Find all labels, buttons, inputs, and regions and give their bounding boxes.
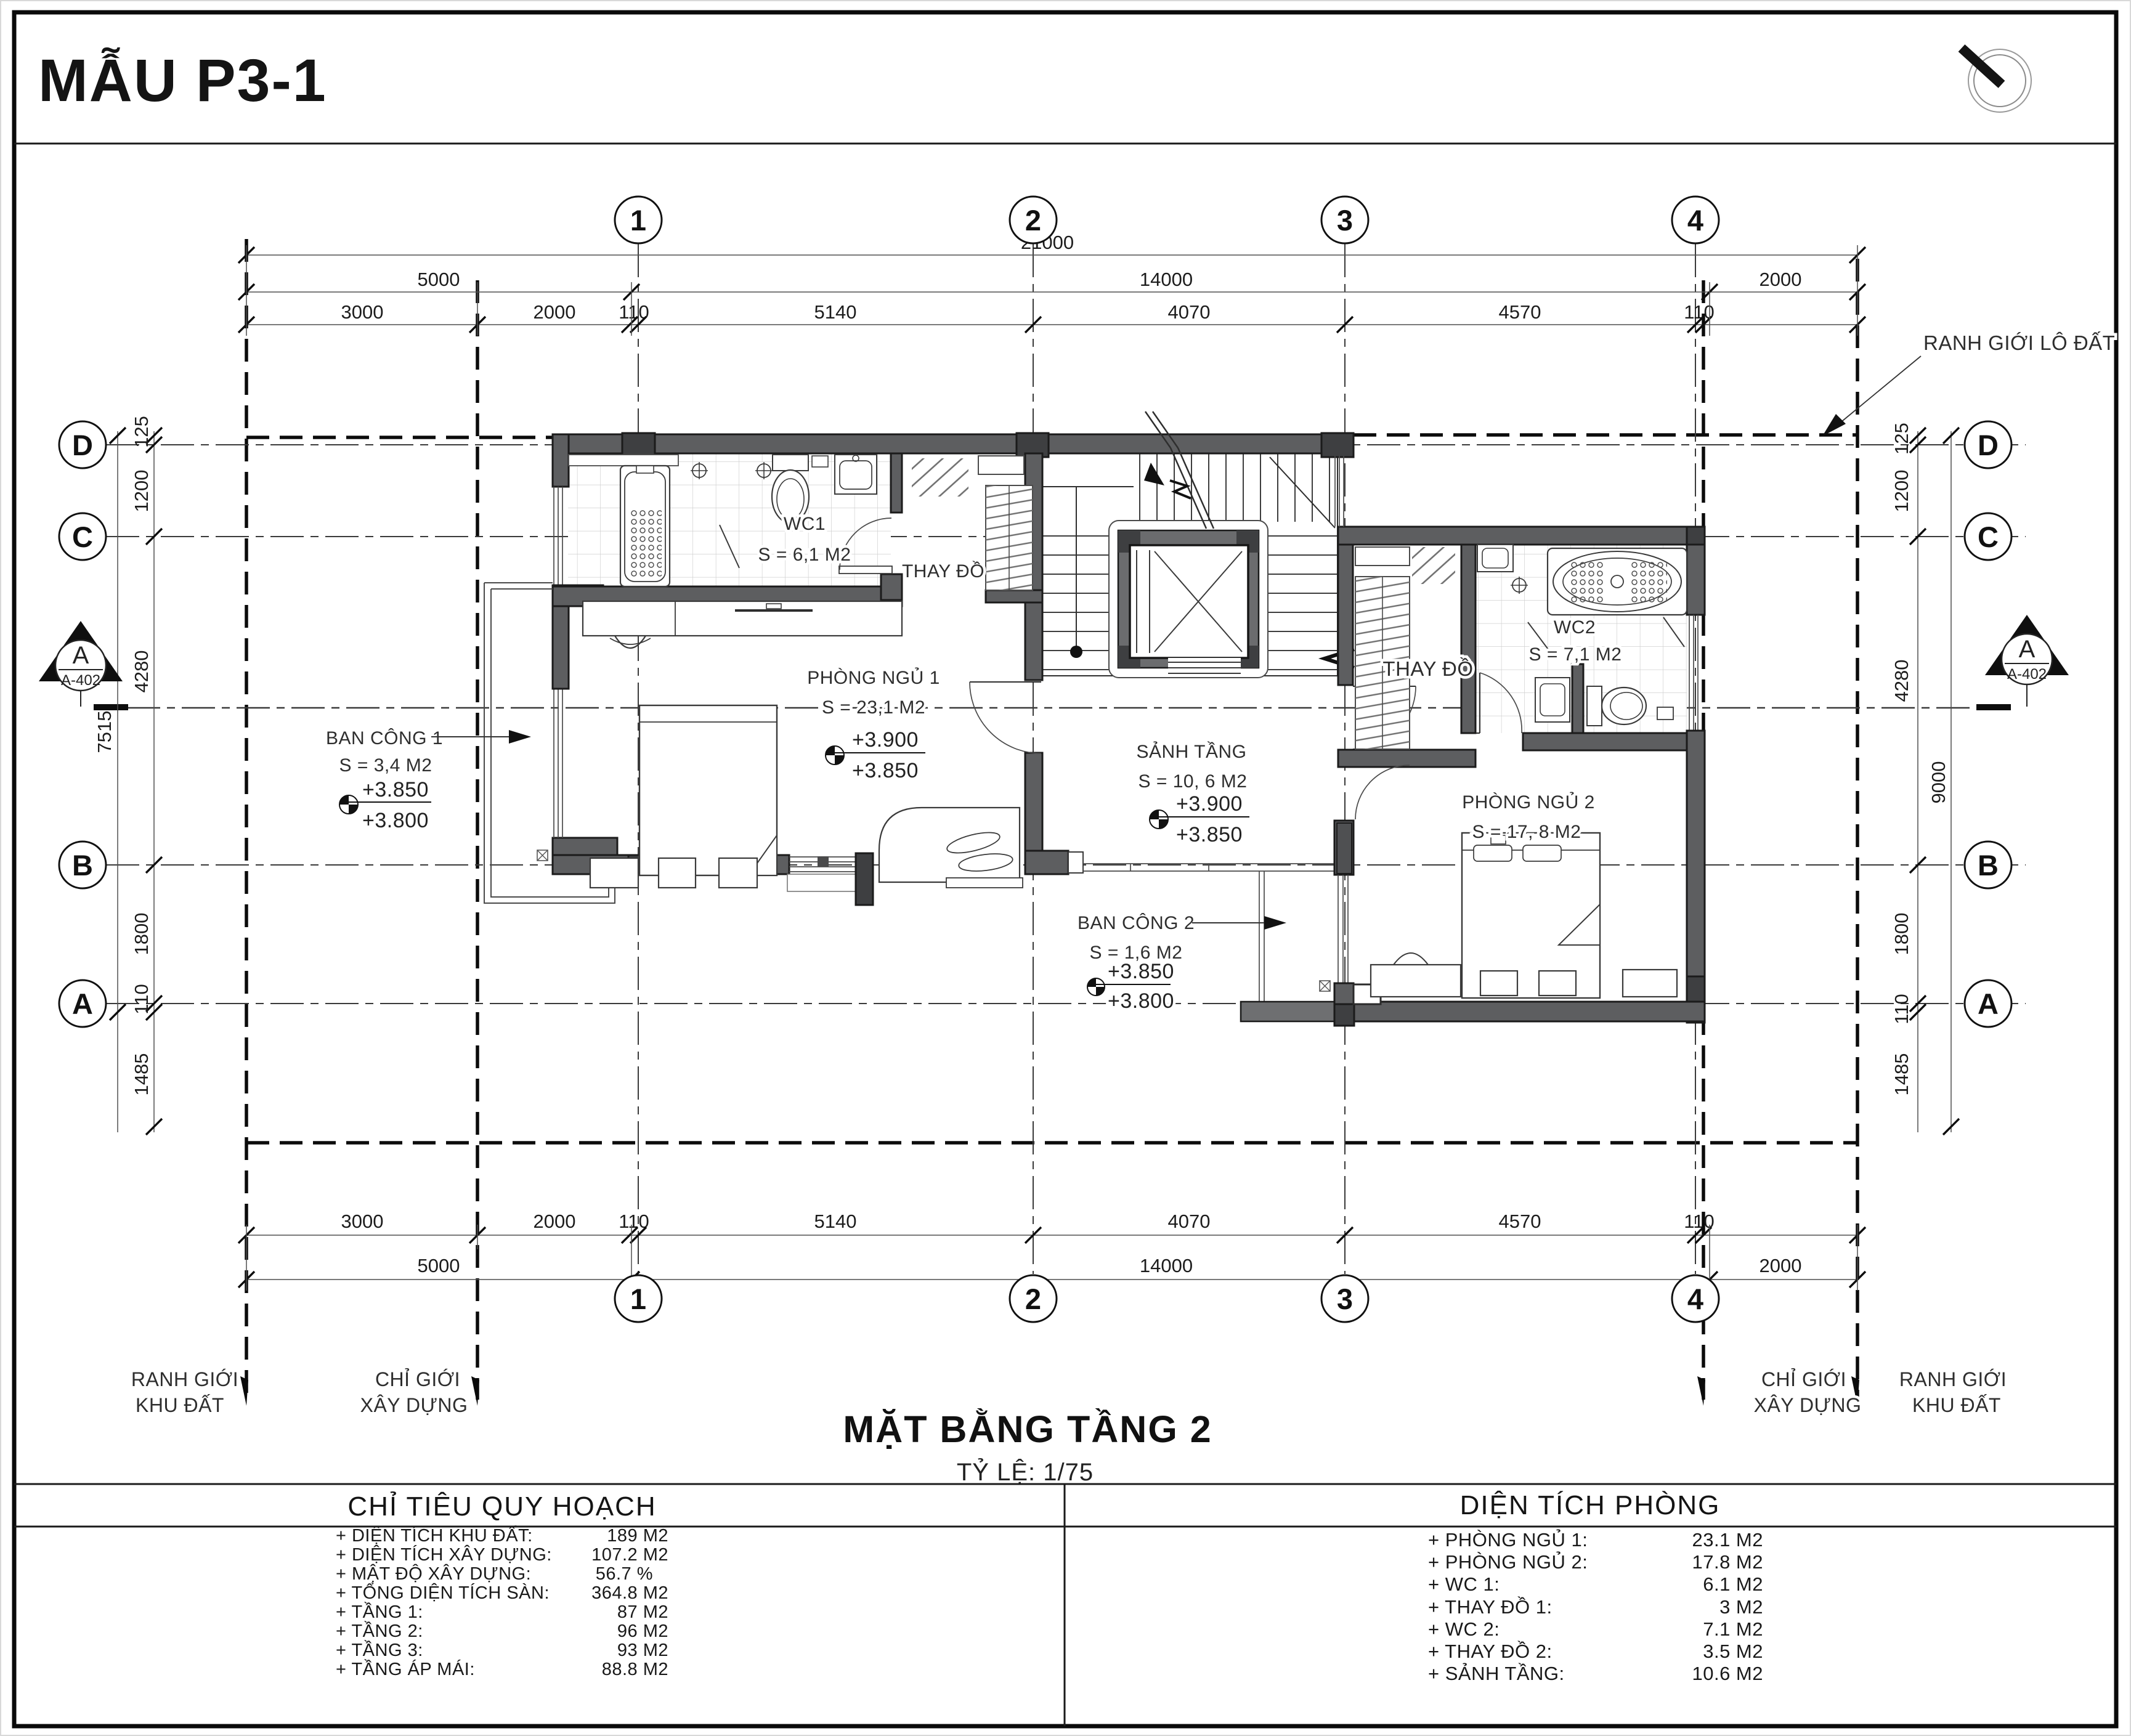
svg-text:S = 10, 6 M2: S = 10, 6 M2 <box>1139 771 1248 792</box>
svg-text:2: 2 <box>1025 204 1041 237</box>
svg-text:CHỈ GIỚI: CHỈ GIỚI <box>1761 1368 1846 1390</box>
svg-text:A: A <box>2019 636 2036 663</box>
svg-text:2000: 2000 <box>1760 1255 1802 1276</box>
svg-text:5000: 5000 <box>418 269 460 290</box>
svg-text:2000: 2000 <box>534 301 576 323</box>
svg-text:+3.850: +3.850 <box>1108 960 1174 983</box>
svg-text:5140: 5140 <box>814 1211 857 1232</box>
svg-text:125: 125 <box>131 416 152 448</box>
svg-text:+ DIỆN TÍCH XÂY DỰNG:: + DIỆN TÍCH XÂY DỰNG: <box>336 1544 552 1565</box>
svg-text:A: A <box>1978 988 1999 1020</box>
svg-text:D: D <box>1978 429 1999 461</box>
svg-text:MẪU P3-1: MẪU P3-1 <box>38 47 327 114</box>
svg-text:+ WC 1:: + WC 1: <box>1428 1573 1500 1595</box>
svg-text:364.8 M2: 364.8 M2 <box>591 1583 668 1603</box>
svg-text:3: 3 <box>1337 1283 1353 1315</box>
svg-text:3000: 3000 <box>341 1211 384 1232</box>
svg-text:5140: 5140 <box>814 301 857 323</box>
svg-text:THAY ĐỒ: THAY ĐỒ <box>1382 657 1473 680</box>
svg-text:189 M2: 189 M2 <box>607 1526 668 1546</box>
svg-text:S = 7,1 M2: S = 7,1 M2 <box>1529 644 1622 665</box>
svg-text:BAN CÔNG 2: BAN CÔNG 2 <box>1078 912 1195 933</box>
svg-text:4070: 4070 <box>1168 301 1211 323</box>
svg-text:B: B <box>72 849 93 882</box>
svg-text:C: C <box>72 521 93 553</box>
svg-text:3.5 M2: 3.5 M2 <box>1703 1641 1763 1662</box>
svg-text:TỶ LỆ: 1/75: TỶ LỆ: 1/75 <box>957 1458 1094 1486</box>
svg-text:2: 2 <box>1025 1283 1041 1315</box>
svg-text:5000: 5000 <box>418 1255 460 1276</box>
svg-text:125: 125 <box>1891 423 1912 455</box>
svg-text:+ TẦNG 3:: + TẦNG 3: <box>336 1639 423 1660</box>
svg-text:S = 3,4 M2: S = 3,4 M2 <box>339 755 432 776</box>
svg-text:+ TỔNG DIỆN TÍCH SÀN:: + TỔNG DIỆN TÍCH SÀN: <box>336 1582 550 1603</box>
svg-text:14000: 14000 <box>1140 269 1193 290</box>
svg-text:1200: 1200 <box>131 470 152 513</box>
svg-text:S = 6,1 M2: S = 6,1 M2 <box>758 545 851 565</box>
svg-text:A-402: A-402 <box>2007 666 2047 683</box>
svg-text:+3.900: +3.900 <box>852 728 919 752</box>
svg-text:+ THAY ĐỒ 2:: + THAY ĐỒ 2: <box>1428 1640 1553 1662</box>
svg-text:4570: 4570 <box>1499 1211 1541 1232</box>
svg-text:WC1: WC1 <box>784 514 826 534</box>
svg-text:+3.850: +3.850 <box>852 759 919 782</box>
svg-text:1800: 1800 <box>131 913 152 955</box>
svg-text:+ MẬT ĐỘ XÂY DỰNG:: + MẬT ĐỘ XÂY DỰNG: <box>336 1563 531 1584</box>
svg-text:PHÒNG NGỦ 1: PHÒNG NGỦ 1 <box>807 667 940 688</box>
svg-text:17.8 M2: 17.8 M2 <box>1692 1551 1763 1573</box>
svg-text:1200: 1200 <box>1891 470 1912 513</box>
svg-text:1: 1 <box>630 204 646 237</box>
svg-text:MẶT BẰNG TẦNG 2: MẶT BẰNG TẦNG 2 <box>843 1408 1212 1450</box>
svg-text:+3.850: +3.850 <box>362 778 429 801</box>
svg-text:CHỈ TIÊU QUY HOẠCH: CHỈ TIÊU QUY HOẠCH <box>347 1491 656 1522</box>
svg-text:PHÒNG NGỦ 2: PHÒNG NGỦ 2 <box>1462 792 1595 813</box>
svg-text:+ THAY ĐỒ 1:: + THAY ĐỒ 1: <box>1428 1596 1553 1618</box>
svg-text:1485: 1485 <box>1891 1053 1912 1096</box>
svg-text:23.1 M2: 23.1 M2 <box>1692 1529 1763 1551</box>
svg-text:2000: 2000 <box>1760 269 1802 290</box>
svg-text:+ PHÒNG NGỦ 1:: + PHÒNG NGỦ 1: <box>1428 1528 1588 1551</box>
svg-text:56.7 %: 56.7 % <box>596 1564 653 1584</box>
svg-text:3 M2: 3 M2 <box>1719 1596 1763 1618</box>
svg-text:4280: 4280 <box>1891 660 1912 702</box>
svg-text:C: C <box>1978 521 1999 553</box>
svg-text:4: 4 <box>1687 1283 1703 1315</box>
svg-text:RANH GIỚI LÔ ĐẤT: RANH GIỚI LÔ ĐẤT <box>1923 331 2115 354</box>
svg-text:4: 4 <box>1687 204 1703 237</box>
svg-text:+3.850: +3.850 <box>1176 823 1243 846</box>
svg-text:DIỆN TÍCH PHÒNG: DIỆN TÍCH PHÒNG <box>1460 1490 1721 1520</box>
svg-text:+ TẦNG 2:: + TẦNG 2: <box>336 1620 423 1641</box>
svg-text:4570: 4570 <box>1499 301 1541 323</box>
svg-text:110: 110 <box>1891 994 1912 1024</box>
svg-text:6.1 M2: 6.1 M2 <box>1703 1573 1763 1595</box>
svg-text:WC2: WC2 <box>1554 617 1596 638</box>
svg-text:A-402: A-402 <box>61 672 100 689</box>
svg-text:A: A <box>73 642 89 669</box>
svg-text:+ TẦNG ÁP MÁI:: + TẦNG ÁP MÁI: <box>336 1658 475 1679</box>
svg-text:4070: 4070 <box>1168 1211 1211 1232</box>
svg-text:S = 23,1 M2: S = 23,1 M2 <box>822 697 925 718</box>
svg-text:CHỈ GIỚI: CHỈ GIỚI <box>375 1368 460 1390</box>
svg-text:2000: 2000 <box>534 1211 576 1232</box>
svg-text:+ SẢNH TẦNG:: + SẢNH TẦNG: <box>1428 1663 1565 1684</box>
svg-text:XÂY DỰNG: XÂY DỰNG <box>360 1394 468 1416</box>
svg-text:14000: 14000 <box>1140 1255 1193 1276</box>
svg-text:XÂY DỰNG: XÂY DỰNG <box>1754 1394 1862 1416</box>
svg-text:1485: 1485 <box>131 1053 152 1096</box>
svg-text:+ PHÒNG NGỦ 2:: + PHÒNG NGỦ 2: <box>1428 1551 1588 1573</box>
svg-text:93 M2: 93 M2 <box>617 1641 668 1660</box>
svg-text:9000: 9000 <box>1928 761 1949 804</box>
svg-text:+ DIỆN TÍCH KHU ĐẤT:: + DIỆN TÍCH KHU ĐẤT: <box>336 1525 533 1546</box>
svg-text:10.6 M2: 10.6 M2 <box>1692 1663 1763 1684</box>
svg-text:+3.900: +3.900 <box>1176 792 1243 816</box>
svg-text:+ TẦNG 1:: + TẦNG 1: <box>336 1601 423 1622</box>
svg-text:1800: 1800 <box>1891 913 1912 955</box>
svg-text:+ WC 2:: + WC 2: <box>1428 1618 1500 1640</box>
svg-text:+3.800: +3.800 <box>362 809 429 832</box>
svg-text:S = 17, 8 M2: S = 17, 8 M2 <box>1472 822 1581 842</box>
svg-text:4280: 4280 <box>131 651 152 693</box>
svg-text:THAY ĐỒ: THAY ĐỒ <box>902 561 984 582</box>
svg-text:96 M2: 96 M2 <box>617 1621 668 1641</box>
svg-text:88.8 M2: 88.8 M2 <box>602 1660 668 1679</box>
svg-text:SẢNH TẦNG: SẢNH TẦNG <box>1137 741 1247 762</box>
svg-text:7515: 7515 <box>94 711 115 753</box>
svg-text:A: A <box>72 988 93 1020</box>
svg-text:87 M2: 87 M2 <box>617 1602 668 1622</box>
svg-text:3: 3 <box>1337 204 1353 237</box>
svg-text:KHU ĐẤT: KHU ĐẤT <box>1912 1394 2001 1416</box>
svg-text:KHU ĐẤT: KHU ĐẤT <box>136 1394 224 1416</box>
svg-text:3000: 3000 <box>341 301 384 323</box>
svg-text:B: B <box>1978 849 1999 882</box>
svg-text:D: D <box>72 429 93 461</box>
svg-text:107.2 M2: 107.2 M2 <box>591 1545 668 1565</box>
svg-text:7.1 M2: 7.1 M2 <box>1703 1618 1763 1640</box>
svg-text:RANH GIỚI: RANH GIỚI <box>1899 1368 2007 1390</box>
svg-text:BAN CÔNG 1: BAN CÔNG 1 <box>326 728 443 748</box>
svg-text:110: 110 <box>131 984 152 1014</box>
svg-text:RANH GIỚI: RANH GIỚI <box>131 1368 238 1390</box>
svg-text:+3.800: +3.800 <box>1108 989 1174 1013</box>
svg-text:1: 1 <box>630 1283 646 1315</box>
